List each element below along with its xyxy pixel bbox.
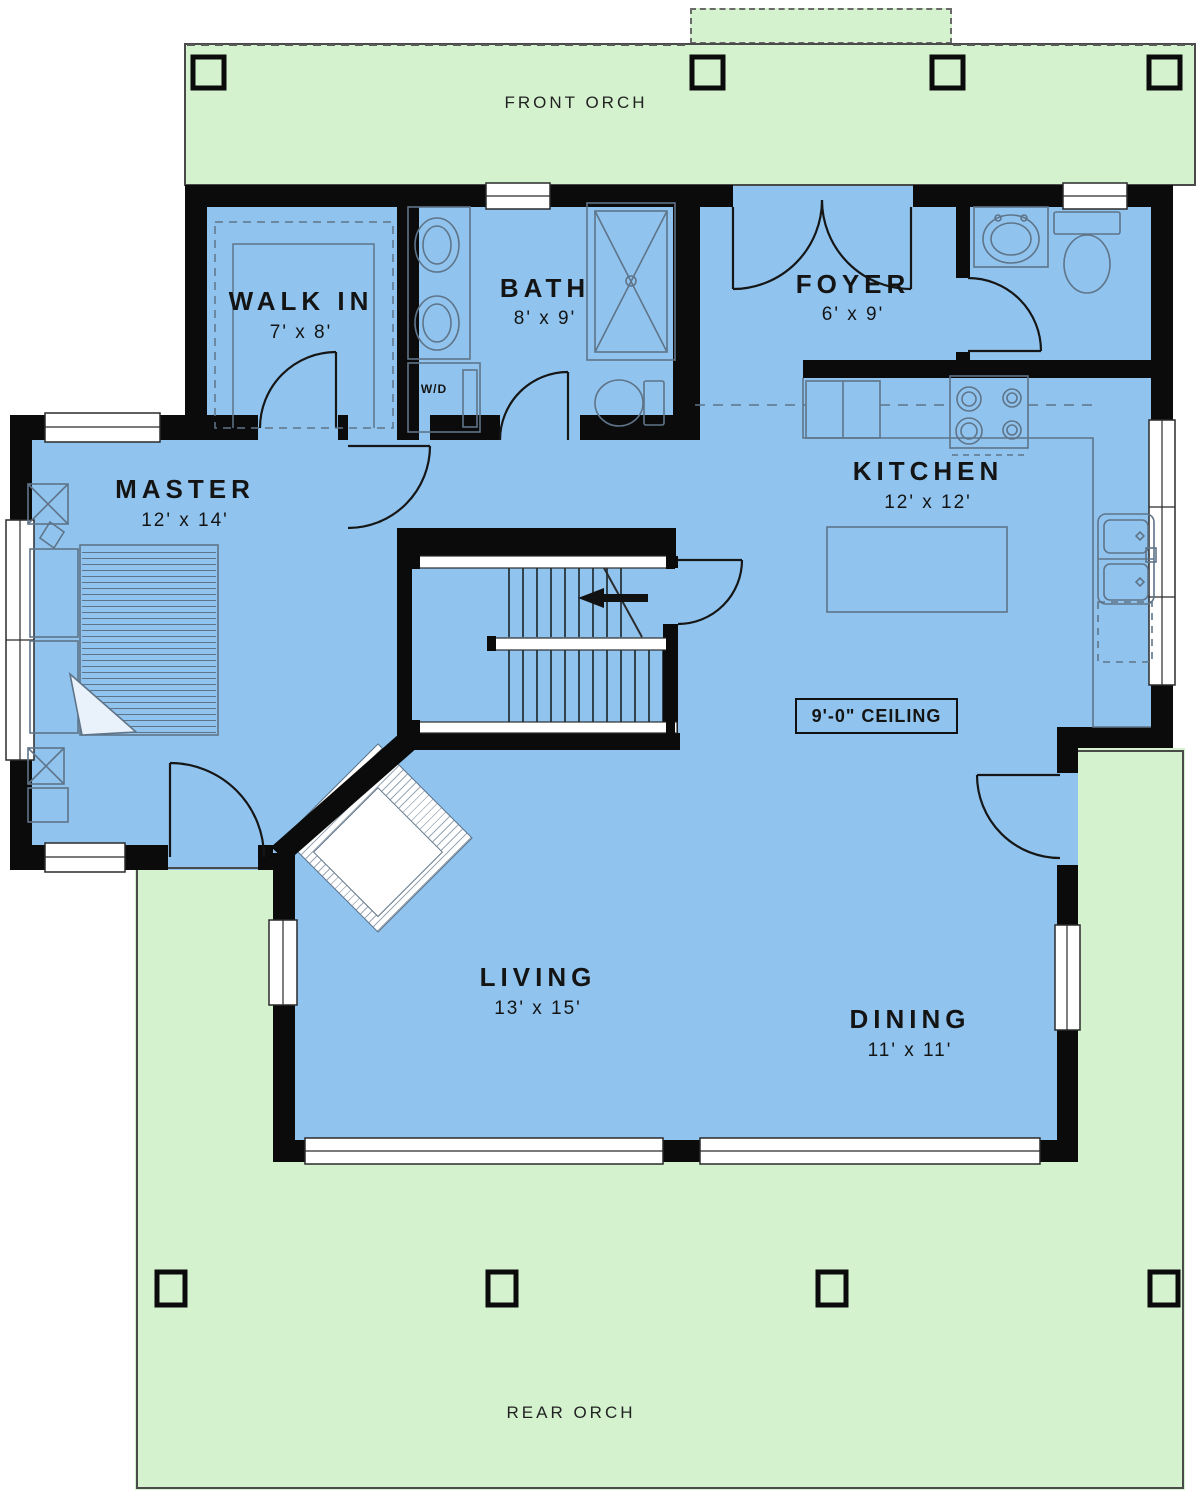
- washer-dryer-label: W/D: [421, 382, 447, 396]
- dishwasher: [1098, 602, 1152, 662]
- dining-porch-door: [977, 775, 1060, 858]
- floor-plan: 9'-0" CEILING FRONT ORCH REAR ORCH WALK …: [0, 0, 1200, 1496]
- windows: [6, 183, 1175, 1164]
- master-hall-door: [348, 446, 430, 528]
- rear-porch-post: [157, 1272, 185, 1305]
- walk-in-label: WALK IN: [229, 286, 374, 317]
- bed-pillow-1: [30, 549, 78, 637]
- walk-in-dims: 7' x 8': [270, 322, 332, 344]
- walls: [10, 185, 1173, 1162]
- front-porch-post: [932, 57, 963, 88]
- porch-outlines: [137, 44, 1195, 1488]
- kitchen-island: [827, 527, 1007, 612]
- front-porch-label: FRONT ORCH: [504, 93, 647, 113]
- bath-label: BATH: [500, 273, 590, 304]
- lamp: [40, 522, 64, 548]
- master-label: MASTER: [115, 474, 255, 505]
- bed-fold: [70, 674, 136, 735]
- walk-in-door: [260, 352, 336, 428]
- powder-toilet-tank: [1054, 212, 1120, 234]
- ceiling-height-note: 9'-0" CEILING: [795, 698, 958, 734]
- stair-closet-door: [678, 560, 742, 624]
- front-porch-post: [1149, 57, 1180, 88]
- living-dims: 13' x 15': [494, 998, 582, 1020]
- kitchen-label: KITCHEN: [853, 456, 1004, 487]
- rear-porch-label: REAR ORCH: [506, 1403, 635, 1423]
- window-mullions: [6, 196, 1175, 1151]
- fireplace-diagonal-wall: [271, 733, 418, 862]
- front-porch-post: [193, 57, 224, 88]
- stair-rail-mid: [490, 638, 673, 650]
- powder-door: [968, 278, 1041, 351]
- stair-direction-arrow: [578, 588, 648, 608]
- bath-door: [500, 372, 568, 440]
- stair-break-line: [604, 568, 642, 637]
- dining-dims: 11' x 11': [868, 1040, 953, 1062]
- powder-vanity: [974, 207, 1048, 267]
- master-living-door: [170, 763, 264, 857]
- stairs: [411, 554, 677, 735]
- plan-linework: [0, 0, 1200, 1496]
- foyer-dims: 6' x 9': [822, 304, 884, 326]
- kitchen-fixtures: [695, 376, 1156, 727]
- master-furniture: [28, 484, 218, 822]
- rear-porch-post: [1150, 1272, 1178, 1305]
- stair-rail-top: [413, 556, 673, 568]
- rear-porch-post: [818, 1272, 846, 1305]
- dining-label: DINING: [850, 1004, 971, 1035]
- bath-dims: 8' x 9': [514, 308, 576, 330]
- powder-fixtures: [974, 207, 1120, 293]
- stair-rail-bottom: [413, 722, 677, 733]
- bed-pillow-2: [30, 641, 78, 733]
- ceiling-note-text: 9'-0" CEILING: [812, 706, 942, 727]
- bench: [28, 788, 68, 822]
- living-label: LIVING: [480, 962, 597, 993]
- kitchen-dims: 12' x 12': [884, 492, 972, 514]
- rear-porch-post: [488, 1272, 516, 1305]
- front-porch-post: [692, 57, 723, 88]
- foyer-label: FOYER: [796, 269, 911, 300]
- master-dims: 12' x 14': [141, 510, 229, 532]
- powder-toilet: [1064, 235, 1110, 293]
